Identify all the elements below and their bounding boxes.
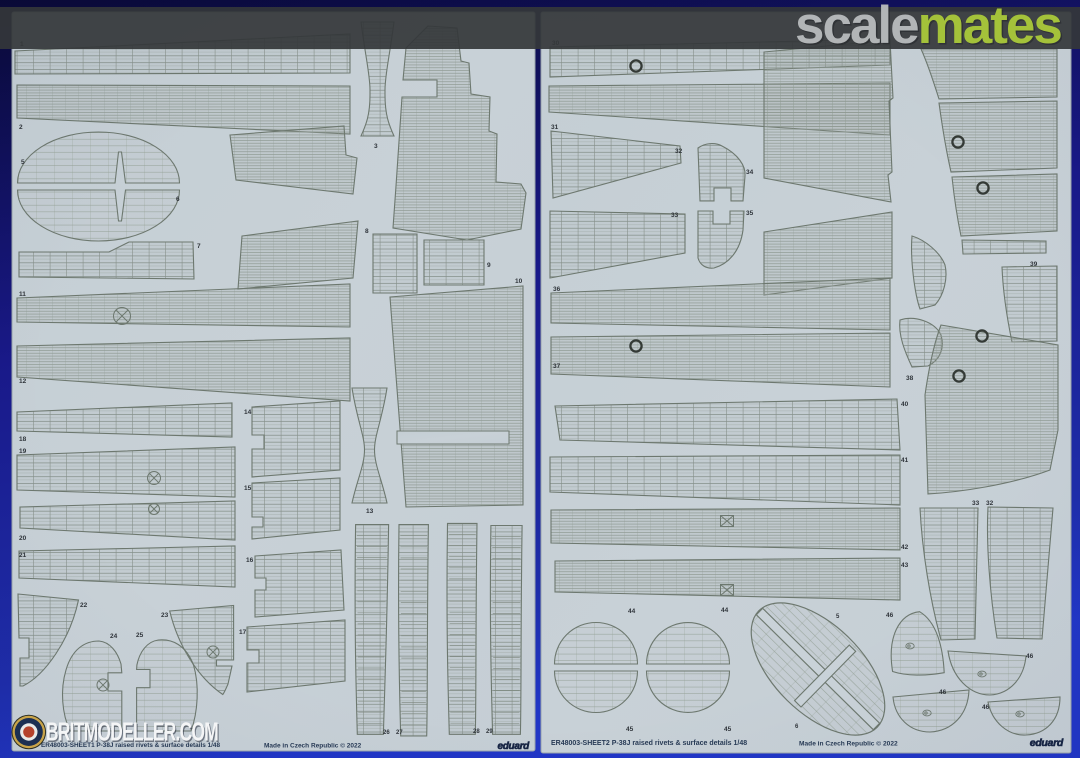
svg-text:BRITMODELLER.COM: BRITMODELLER.COM xyxy=(46,717,218,746)
svg-text:scalemates: scalemates xyxy=(795,0,1061,55)
